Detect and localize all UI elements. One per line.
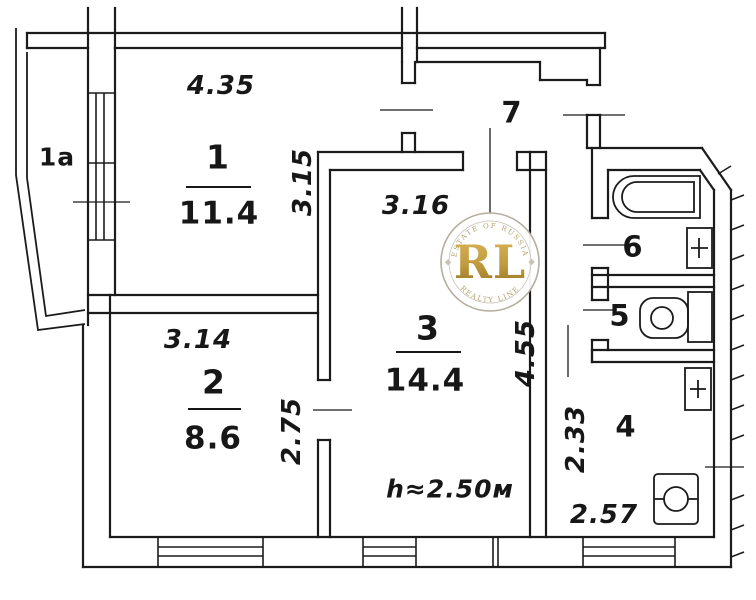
watermark-logo: ESTATE OF RUSSIA REALTY LINE RL [441, 213, 539, 311]
dim-room2-width: 3.14 [164, 327, 232, 353]
room-1-area: 11.4 [179, 199, 260, 230]
room-2-area: 8.6 [184, 424, 242, 455]
floor-plan: ESTATE OF RUSSIA REALTY LINE RL 1a 1 11.… [0, 0, 756, 600]
room-3-number: 3 [416, 312, 440, 345]
room-1-number: 1 [206, 141, 230, 174]
watermark-initials: RL [454, 235, 527, 289]
dim-kitchen-width: 2.57 [570, 502, 638, 528]
room-1-divider [186, 186, 251, 188]
bathroom-sink-icon [687, 228, 712, 268]
room-1a-number: 1a [39, 145, 75, 170]
walls [27, 8, 731, 567]
room-4-number: 4 [615, 413, 636, 442]
room-2-number: 2 [202, 366, 226, 399]
room-5-number: 5 [609, 302, 630, 331]
floor-plan-drawing: ESTATE OF RUSSIA REALTY LINE RL [0, 0, 756, 600]
room-2-divider [188, 408, 241, 410]
vent-box-icon [685, 368, 711, 410]
toilet-icon [640, 292, 712, 342]
balcony-outline [16, 28, 85, 330]
ceiling-height-note: h≈2.50м [386, 477, 514, 502]
dim-room1-width: 4.35 [187, 73, 255, 99]
dim-room3-depth: 4.55 [513, 319, 539, 387]
dimension-ticks [73, 110, 744, 467]
dim-room1-depth: 3.15 [290, 148, 316, 216]
room-3-area: 14.4 [385, 366, 466, 397]
dim-room3-width: 3.16 [382, 193, 450, 219]
dim-room2-depth: 2.75 [279, 397, 305, 465]
room-3-divider [396, 351, 461, 353]
dim-kitchen-depth: 2.33 [563, 405, 589, 473]
kitchen-sink-icon [654, 474, 698, 524]
room-7-number: 7 [501, 99, 522, 128]
bathtub-icon [613, 176, 700, 218]
room-6-number: 6 [622, 233, 643, 262]
